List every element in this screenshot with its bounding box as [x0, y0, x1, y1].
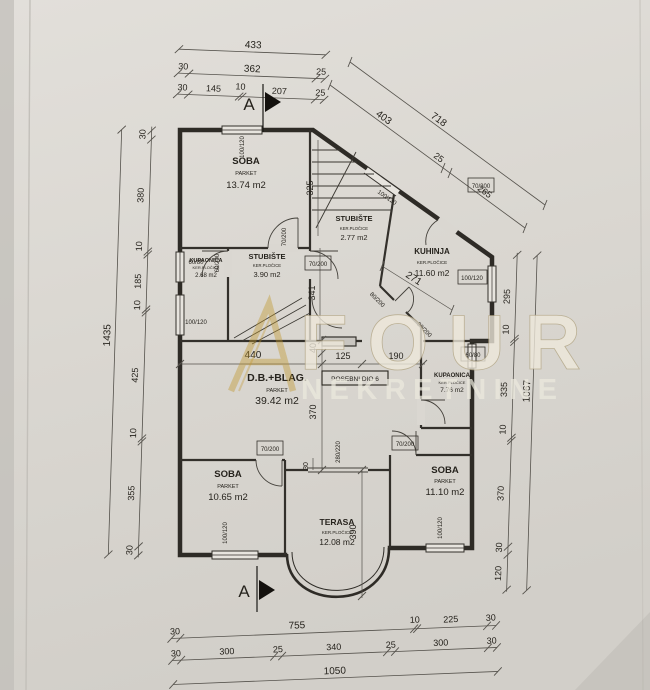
- dim: 10: [128, 428, 138, 438]
- room-finish: KER.PLOČICE: [340, 226, 368, 231]
- floor-plan-svg: 433 30 362 25 30 145 10 207 25 718 403 2…: [0, 0, 650, 690]
- room-name: KUPAONICA: [190, 258, 223, 264]
- room-finish: PARKET: [217, 484, 239, 490]
- dim: 25: [386, 640, 396, 650]
- dim-terrace-offset: 30: [303, 462, 310, 470]
- watermark-brand: FOUR: [300, 298, 601, 386]
- room-finish: KER.PLOČICE: [193, 265, 220, 270]
- room-finish: PARKET: [266, 388, 288, 394]
- dim: 380: [135, 188, 145, 203]
- door-label: 70/200: [309, 262, 328, 268]
- dim: 362: [244, 64, 262, 76]
- dim: 10: [132, 300, 142, 310]
- window-label: 100/120: [240, 136, 246, 158]
- dim: 355: [126, 485, 136, 500]
- watermark-brand-sub: NEKRETNINE: [301, 374, 565, 406]
- dim: 30: [486, 612, 496, 622]
- dim: 30: [137, 129, 147, 139]
- dim: 10: [235, 81, 245, 91]
- dim: 145: [206, 83, 221, 94]
- dim-top-total: 433: [245, 40, 263, 52]
- dim: 30: [171, 648, 181, 658]
- room-area: 12.08 m2: [319, 537, 355, 547]
- room-name: KUHINJA: [414, 247, 450, 256]
- paper-left-edge: [0, 0, 14, 690]
- room-name: STUBIŠTE: [248, 252, 285, 261]
- dim: 340: [326, 642, 341, 653]
- room-area: 2.77 m2: [340, 233, 367, 242]
- dim: 30: [178, 61, 188, 71]
- dim: 25: [316, 66, 326, 76]
- dim: 30: [486, 635, 496, 645]
- dim: 25: [273, 644, 283, 654]
- dim: 207: [272, 86, 287, 97]
- room-name: SOBA: [232, 156, 260, 167]
- room-area: 13.74 m2: [226, 180, 266, 191]
- dim: 25: [315, 87, 325, 97]
- dim-bottom-total: 1050: [323, 666, 346, 678]
- dim-left-total: 1435: [102, 324, 114, 347]
- dim-stair: 325: [305, 180, 315, 195]
- window-label: 100/120: [185, 320, 207, 326]
- door-label: 70/200: [396, 442, 415, 448]
- room-name: TERASA: [320, 517, 355, 527]
- dim: 10: [410, 615, 420, 625]
- dim: 370: [495, 486, 505, 501]
- dim: 300: [433, 637, 448, 648]
- room-area: 39.42 m2: [255, 395, 299, 407]
- terrace-door-label: 280/220: [336, 441, 342, 463]
- floor-plan-photo: 433 30 362 25 30 145 10 207 25 718 403 2…: [0, 0, 650, 690]
- room-area: 10.65 m2: [208, 492, 248, 503]
- room-area: 3.90 m2: [253, 270, 280, 279]
- dim: 10: [498, 424, 508, 434]
- door-label: 70/200: [261, 447, 280, 453]
- room-area: 11.60 m2: [415, 268, 450, 278]
- room-finish: KER.PLOČICE: [253, 263, 281, 268]
- room-name: STUBIŠTE: [335, 214, 372, 223]
- room-finish: PARKET: [434, 479, 456, 485]
- window-label: 100/120: [223, 522, 229, 544]
- dim: 30: [124, 545, 134, 555]
- room-area: 2.68 m2: [195, 273, 217, 279]
- dim-db-height: 370: [308, 404, 318, 419]
- room-finish: KER.PLOČICE: [322, 529, 352, 535]
- dim: 755: [288, 620, 306, 632]
- dim: 300: [219, 646, 234, 657]
- room-name: SOBA: [214, 469, 242, 480]
- dim: 225: [443, 614, 458, 625]
- section-letter: A: [243, 95, 255, 114]
- room-finish: PARKET: [235, 171, 257, 177]
- door-label: 70/200: [472, 184, 491, 190]
- door-label: 70/200: [282, 227, 288, 246]
- window-label: 100/120: [438, 517, 444, 539]
- window-label: 100/120: [461, 276, 483, 282]
- dim: 30: [170, 626, 180, 636]
- dim: 30: [177, 82, 187, 92]
- dim: 10: [134, 241, 144, 251]
- section-letter: A: [238, 582, 250, 601]
- room-finish: KER.PLOČICE: [417, 259, 447, 265]
- room-name: SOBA: [431, 465, 459, 476]
- dim: 185: [133, 274, 143, 289]
- dim: 30: [494, 542, 504, 552]
- room-area: 11.10 m2: [426, 487, 465, 498]
- dim: 120: [493, 566, 503, 581]
- dim: 425: [130, 368, 140, 383]
- room-name: D.B.+BLAG.: [247, 372, 307, 384]
